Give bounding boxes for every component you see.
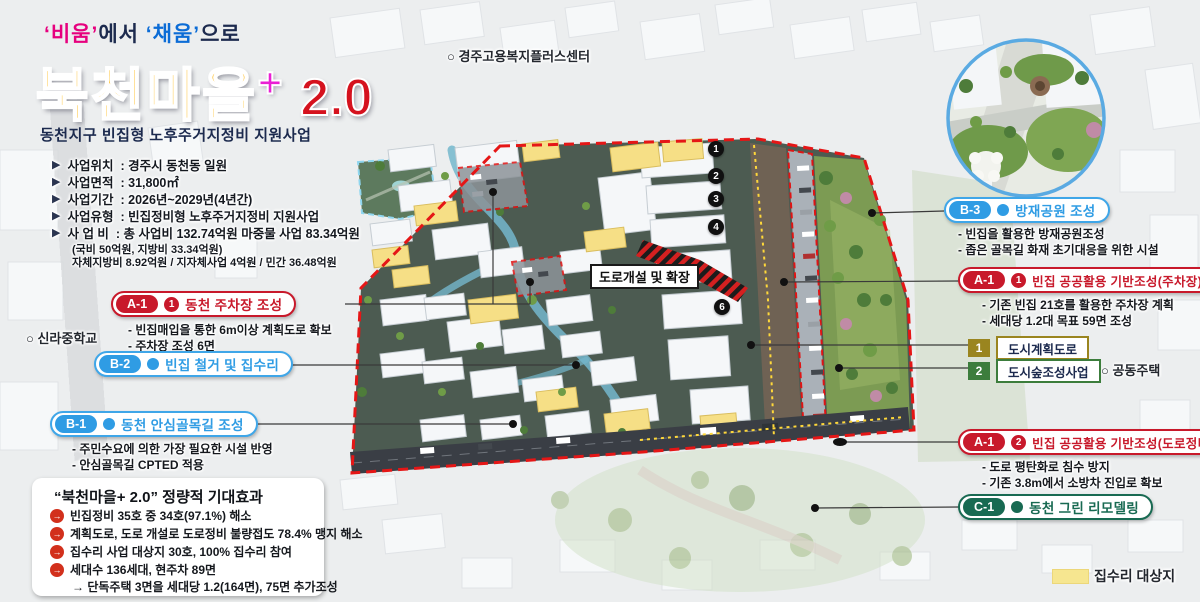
place-welfare-center: ○ 경주고용복지플러스센터 (447, 46, 590, 65)
tagline: ‘비움’에서 ‘채움’으로 (44, 18, 241, 48)
title-plus: + (258, 59, 283, 106)
arrow-circle-icon: → (50, 545, 64, 559)
number-badge-icon: 1 (164, 297, 179, 312)
project-info-row: ▶ 사업기간 : 2026년~2029년(4년간) (52, 190, 360, 207)
arrow-circle-icon: → (50, 527, 64, 541)
project-info: ▶ 사업위치 : 경주시 동천동 일원 ▶ 사업면적 : 31,800㎡ ▶ 사… (52, 156, 360, 267)
dot-icon (103, 418, 115, 430)
project-info-row: ▶ 사업유형 : 빈집정비형 노후주거지정비 지원사업 (52, 207, 360, 224)
effects-item: → 세대수 136세대, 현주차 89면 (50, 563, 216, 577)
title-version: 2.0 (300, 69, 372, 127)
triangle-bullet-icon: ▶ (52, 158, 60, 171)
map-marker-1: 1 (708, 141, 724, 157)
callout-code-pill: B-1 (55, 415, 97, 433)
callout-safe-alley-notes: - 주민수요에 의한 가장 필요한 시설 반영 - 안심골목길 CPTED 적용 (72, 441, 273, 473)
callout-dongcheon-parking-notes: - 빈집매입을 통한 6m이상 계획도로 확보 - 주차장 조성 6면 (128, 322, 332, 354)
dot-icon (147, 358, 159, 370)
legend-planned-road: 1 도시계획도로 (968, 336, 1089, 360)
number-badge-icon: 2 (1011, 435, 1026, 450)
map-marker-3: 3 (708, 191, 724, 207)
callout-safe-alley: B-1 동천 안심골목길 조성 (50, 411, 258, 437)
project-info-row: ▶ 사업위치 : 경주시 동천동 일원 (52, 156, 360, 173)
repair-target-swatch (1052, 569, 1089, 584)
tagline-word2: ‘채움’ (146, 23, 200, 46)
project-info-row: ▶ 사 업 비 : 총 사업비 132.74억원 마중물 사업 83.34억원 (52, 224, 360, 241)
budget-note: 자체지방비 8.92억원 / 지자체사업 4억원 / 민간 36.48억원 (72, 254, 360, 267)
map-marker-6: 6 (714, 299, 730, 315)
callout-disaster-park-notes: - 빈집을 활용한 방재공원조성 - 좁은 골목길 화재 초기대응을 위한 시설 (958, 226, 1159, 258)
effects-item: → 빈집정비 35호 중 34호(97.1%) 해소 (50, 509, 251, 523)
arrow-circle-icon: → (50, 509, 64, 523)
page-title: 북천마을 (36, 64, 258, 128)
legend-urban-forest: 2 도시숲조성사업 (968, 359, 1101, 383)
effects-item-sub: → 단독주택 3면을 세대당 1.2(164면), 75면 추가조성 (72, 578, 338, 595)
triangle-bullet-icon: ▶ (52, 192, 60, 205)
callout-dongcheon-parking: A-1 1 동천 주차장 조성 (111, 291, 296, 317)
callout-code-pill: B-2 (99, 355, 141, 373)
map-marker-2: 2 (708, 168, 724, 184)
road-open-label: 도로개설 및 확장 (590, 264, 699, 289)
legend-number: 1 (968, 339, 990, 357)
triangle-bullet-icon: ▶ (52, 226, 60, 239)
budget-note: (국비 50억원, 지방비 33.34억원) (72, 241, 360, 254)
dot-icon (1011, 501, 1023, 513)
effects-title: “북천마을+ 2.0” 정량적 기대효과 (54, 486, 263, 507)
callout-code-pill: B-3 (949, 201, 991, 219)
triangle-bullet-icon: ▶ (52, 209, 60, 222)
tagline-end: 으로 (200, 23, 241, 46)
map-marker-4: 4 (708, 219, 724, 235)
place-apartment: ○ 공동주택 (1101, 360, 1160, 379)
triangle-bullet-icon: ▶ (52, 175, 60, 188)
project-info-row: ▶ 사업면적 : 31,800㎡ (52, 173, 360, 190)
callout-public-use-road: A-1 2 빈집 공공활용 기반조성(도로정비) (958, 429, 1200, 455)
callout-code-pill: A-1 (963, 271, 1005, 289)
number-badge-icon: 1 (1011, 273, 1026, 288)
effects-item: → 계획도로, 도로 개설로 도로정비 불량접도 78.4% 맹지 해소 (50, 527, 363, 541)
callout-disaster-park: B-3 방재공원 조성 (944, 197, 1110, 223)
callout-public-use-parking: A-1 1 빈집 공공활용 기반조성(주차장) (958, 267, 1200, 293)
callout-demolition-repair: B-2 빈집 철거 및 집수리 (94, 351, 293, 377)
tagline-word1: ‘비움’ (44, 23, 98, 46)
repair-target-label: 집수리 대상지 (1094, 566, 1175, 586)
tagline-mid: 에서 (98, 23, 139, 46)
effects-item: → 집수리 사업 대상지 30호, 100% 집수리 참여 (50, 545, 292, 559)
arrow-circle-icon: → (50, 563, 64, 577)
legend-number: 2 (968, 362, 990, 380)
callout-code-pill: A-1 (116, 295, 158, 313)
callout-green-remodeling: C-1 동천 그린 리모델링 (958, 494, 1153, 520)
place-school: ○ 신라중학교 (26, 328, 97, 347)
callout-code-pill: A-1 (963, 433, 1005, 451)
effects-box: “북천마을+ 2.0” 정량적 기대효과 → 빈집정비 35호 중 34호(97… (32, 478, 324, 596)
callout-public-use-parking-notes: - 기존 빈집 21호를 활용한 주차장 계획 - 세대당 1.2대 목표 59… (982, 297, 1174, 329)
subtitle: 동천지구 빈집형 노후주거지정비 지원사업 (40, 124, 311, 145)
dot-icon (997, 204, 1009, 216)
title-row: 북천마을+2.0 (36, 50, 373, 132)
poster-canvas: ‘비움’에서 ‘채움’으로 북천마을+2.0 동천지구 빈집형 노후주거지정비 … (0, 0, 1200, 602)
callout-code-pill: C-1 (963, 498, 1005, 516)
callout-public-use-road-notes: - 도로 평탄화로 침수 방지 - 기존 3.8m에서 소방차 진입로 확보 (982, 459, 1163, 491)
